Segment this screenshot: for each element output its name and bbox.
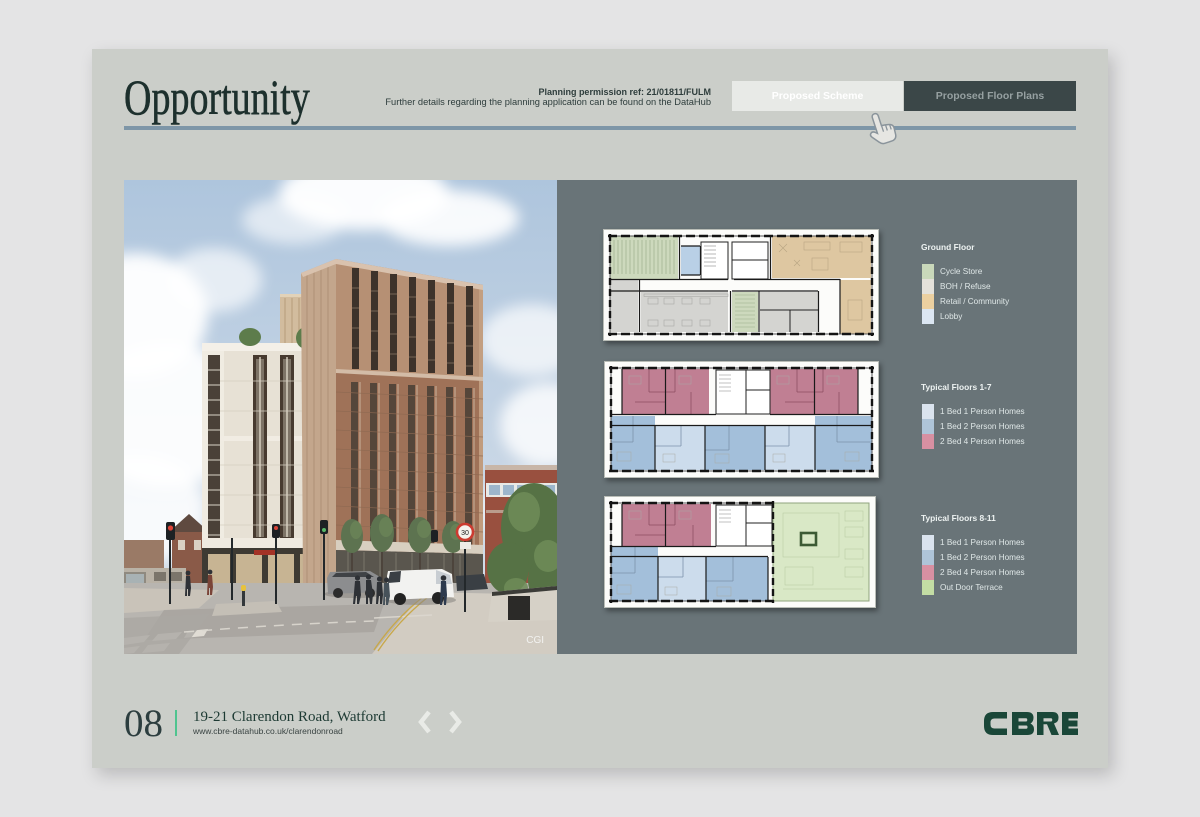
svg-text:30: 30 [461,530,469,537]
svg-text:CGI: CGI [526,635,544,646]
